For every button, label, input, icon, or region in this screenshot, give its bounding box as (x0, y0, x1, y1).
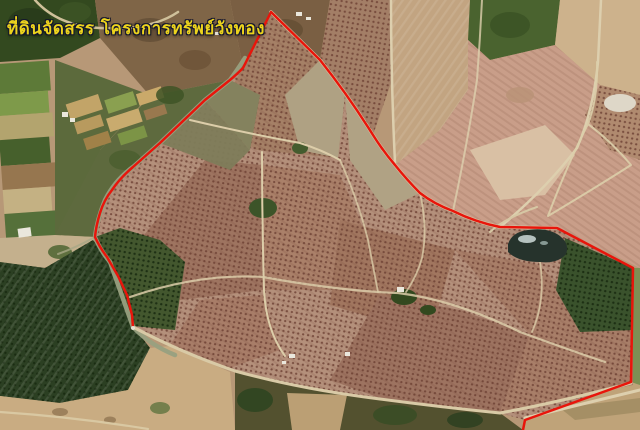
project-title-label: ที่ดินจัดสรร โครงการทรัพย์วังทอง (7, 15, 265, 42)
pond-reflection (518, 235, 536, 243)
boundary-endpoint-marker (131, 326, 135, 330)
aerial-photo-layers (0, 0, 640, 430)
satellite-map: ที่ดินจัดสรร โครงการทรัพย์วังทอง (0, 0, 640, 430)
